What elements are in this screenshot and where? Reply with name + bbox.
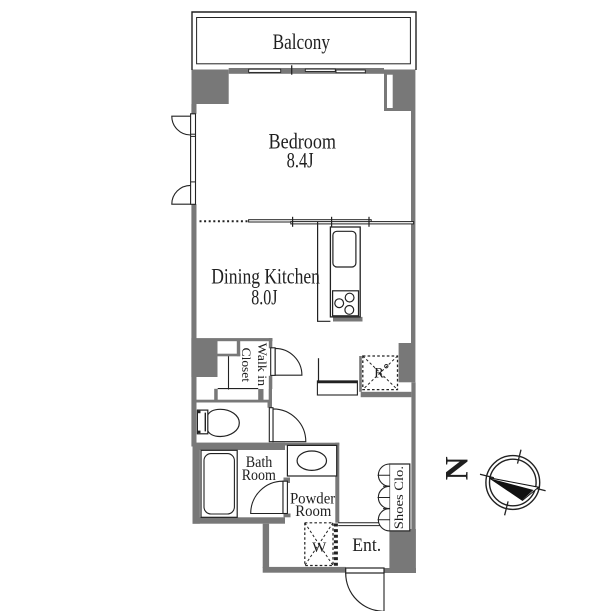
svg-text:Balcony: Balcony xyxy=(273,29,330,54)
svg-text:Room: Room xyxy=(242,467,277,484)
svg-text:Walk in: Walk in xyxy=(255,343,270,387)
svg-text:Closet: Closet xyxy=(239,348,254,383)
svg-text:W: W xyxy=(312,540,327,556)
svg-text:Shoes Clo.: Shoes Clo. xyxy=(391,466,406,529)
svg-text:8.0J: 8.0J xyxy=(251,285,278,310)
svg-text:Ent.: Ent. xyxy=(352,535,381,556)
svg-text:8.4J: 8.4J xyxy=(287,147,314,172)
svg-text:R: R xyxy=(374,365,384,381)
svg-text:N: N xyxy=(440,456,476,480)
svg-text:Room: Room xyxy=(295,503,332,520)
